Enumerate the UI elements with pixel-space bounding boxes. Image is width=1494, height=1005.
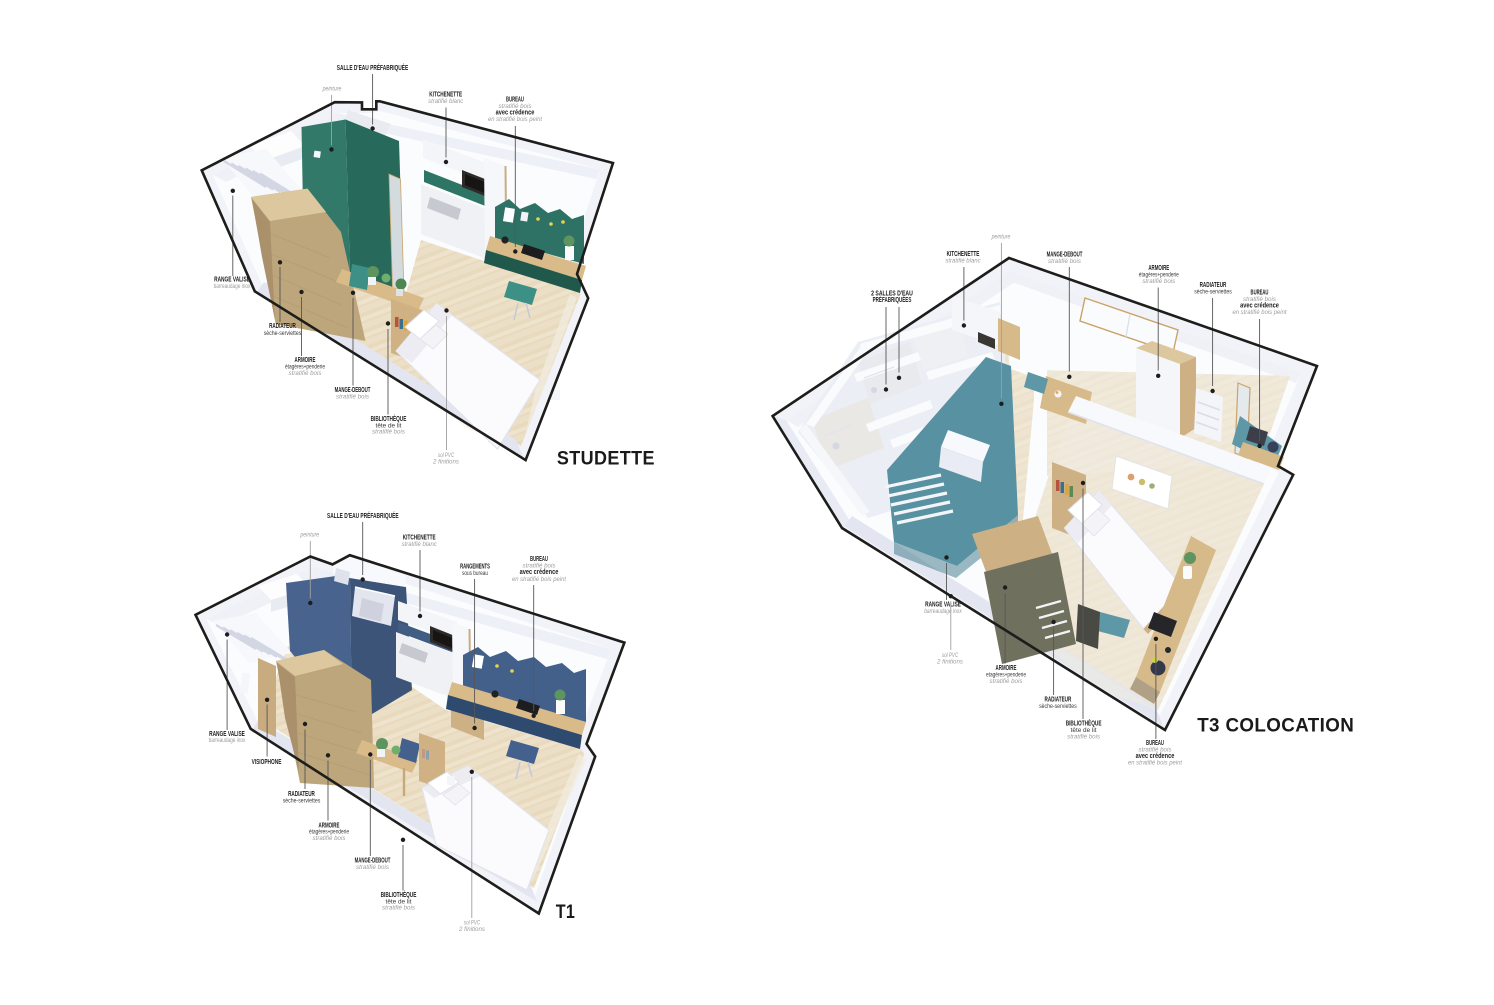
svg-text:SALLE D'EAU PRÉFABRIQUÉE: SALLE D'EAU PRÉFABRIQUÉE [327,511,399,520]
svg-text:peinture: peinture [991,234,1011,241]
svg-text:en stratifié bois peint: en stratifié bois peint [1232,309,1287,316]
svg-text:stratifié bois: stratifié bois [382,905,416,912]
svg-text:2 finitions: 2 finitions [458,926,485,933]
svg-text:sèche-serviettes: sèche-serviettes [264,330,302,337]
svg-text:barreaudage inox: barreaudage inox [209,737,246,744]
svg-text:STUDETTE: STUDETTE [557,449,655,470]
svg-text:stratifié blanc: stratifié blanc [428,98,464,105]
svg-text:VISIOPHONE: VISIOPHONE [252,759,282,766]
svg-text:stratifié bois: stratifié bois [1048,258,1082,265]
svg-text:stratifié bois: stratifié bois [1142,278,1176,285]
svg-text:2 finitions: 2 finitions [432,459,459,466]
svg-text:en stratifié bois peint: en stratifié bois peint [488,116,543,123]
svg-text:sèche-serviettes: sèche-serviettes [283,797,321,804]
svg-text:sèche-serviettes: sèche-serviettes [1039,703,1077,710]
svg-text:sous bureau: sous bureau [462,570,488,577]
svg-text:stratifié blanc: stratifié blanc [945,258,981,265]
svg-text:stratifié bois: stratifié bois [336,393,370,400]
svg-text:stratifié blanc: stratifié blanc [402,541,438,548]
svg-text:T3 COLOCATION: T3 COLOCATION [1197,716,1354,737]
svg-text:peinture: peinture [322,86,342,93]
svg-text:stratifié bois: stratifié bois [356,864,390,871]
svg-text:SALLE D'EAU PRÉFABRIQUÉE: SALLE D'EAU PRÉFABRIQUÉE [337,63,409,72]
svg-text:T1: T1 [556,902,576,923]
svg-text:stratifié bois: stratifié bois [289,370,323,377]
svg-text:2 finitions: 2 finitions [936,659,963,666]
svg-text:stratifié bois: stratifié bois [372,429,406,436]
svg-text:stratifié bois: stratifié bois [1067,734,1101,741]
svg-text:sèche-serviettes: sèche-serviettes [1194,289,1232,296]
svg-text:peinture: peinture [300,532,320,539]
svg-text:en stratifié bois peint: en stratifié bois peint [1128,760,1183,767]
svg-text:stratifié bois: stratifié bois [313,835,347,842]
svg-text:en stratifié bois peint: en stratifié bois peint [512,576,567,583]
svg-text:barreaudage inox: barreaudage inox [924,608,962,615]
svg-text:PRÉFABRIQUÉES: PRÉFABRIQUÉES [873,295,912,304]
svg-text:barreaudage inox: barreaudage inox [214,283,251,290]
svg-text:stratifié bois: stratifié bois [990,678,1024,685]
